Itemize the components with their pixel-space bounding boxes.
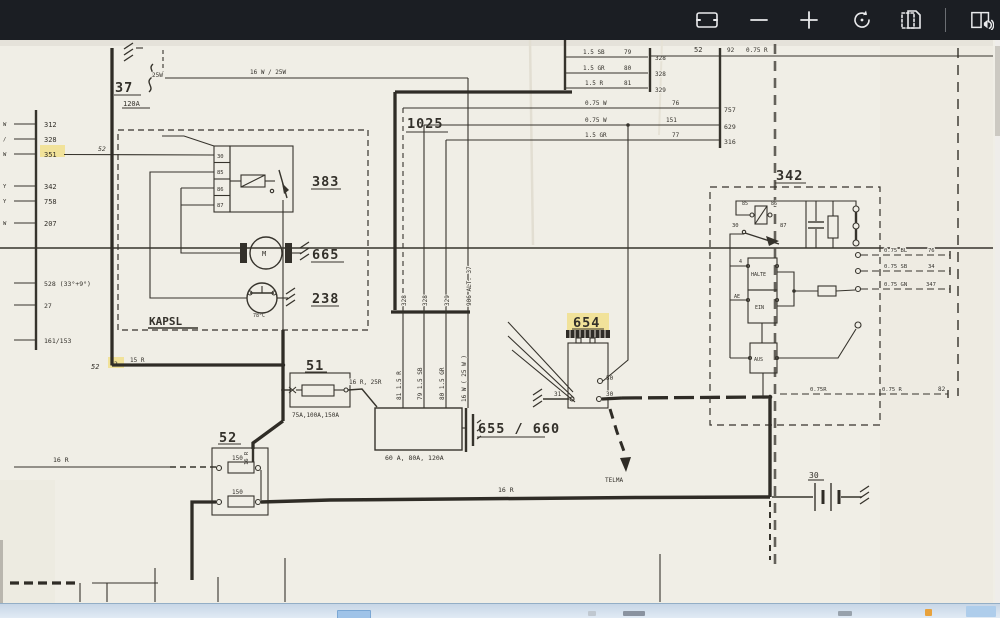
wire-label-16w: 16 W / 25W: [250, 69, 287, 76]
wire-number: 312: [44, 121, 57, 129]
relay-term: 86: [217, 187, 224, 193]
junction-52: 52: [91, 363, 99, 371]
bundle-top: 906 ALT. 37: [466, 266, 473, 306]
viewer-toolbar: [0, 0, 1000, 40]
bus-letter: Y: [3, 184, 7, 190]
toolbar-divider: [945, 8, 946, 32]
out-term: 347: [926, 282, 936, 288]
photo-viewer-window: W / W Y Y W 312 328 351 342 758 207 528 …: [0, 0, 1000, 618]
wire-size: 1.5 SB: [583, 49, 605, 56]
wire-number: 528 (33°+9°): [44, 280, 91, 288]
alternator-bundle: 328 328 329 906 ALT. 37 81 1.5 R 79 1.5 …: [396, 108, 473, 408]
wire-size: 1.5 GR: [585, 132, 607, 139]
wire-term: 77: [672, 132, 680, 139]
wire-number: 758: [44, 198, 57, 206]
relay-output-wire: 52 82 15 R: [91, 200, 285, 449]
switch-halte: HALTE: [751, 272, 766, 278]
component-id-665: 665: [312, 247, 339, 263]
bus-letter: W: [3, 221, 7, 227]
wire-size: 1.5 GR: [583, 65, 605, 72]
relay-654: 654 50 30 31 TELMA: [533, 315, 768, 484]
out-size: 0.75 SB: [884, 264, 908, 270]
fuse-rating-150: 150: [232, 489, 243, 496]
bus-letter: /: [3, 137, 6, 143]
background-window-strip: [0, 603, 1000, 618]
wire-number: 161/153: [44, 337, 71, 345]
wire-term: 76: [672, 100, 680, 107]
bundle-top: 329: [444, 295, 451, 306]
scrollbar-thumb[interactable]: [995, 46, 1000, 136]
wire-term: 81: [624, 80, 632, 87]
switch-ein: EIN: [755, 305, 764, 311]
switch-aus: AUS: [754, 357, 763, 363]
component-id-342: 342: [776, 168, 803, 184]
term-86: 86: [771, 201, 777, 207]
wire-term: 151: [666, 117, 677, 124]
out-term: 76: [928, 248, 935, 254]
fit-to-window-icon[interactable]: [695, 8, 719, 32]
wire-number: 207: [44, 220, 57, 228]
wire-number-351: 351: [44, 151, 57, 159]
label-075r: 0.75 R: [746, 47, 768, 54]
term-87: 87: [780, 223, 787, 229]
component-id-30: 30: [809, 471, 819, 480]
wire-16r-main: 16 R: [498, 486, 514, 494]
bundle-mid: 79 1.5 SB: [417, 367, 424, 400]
left-bus: W / W Y Y W 312 328 351 342 758 207 528 …: [3, 110, 214, 350]
wire-15r: 15 R: [130, 357, 145, 364]
component-id-37: 37: [115, 80, 133, 96]
background-ui-fragment: [925, 609, 932, 616]
term-ae: AE: [734, 294, 740, 300]
bottom-partial-lines: [10, 554, 660, 602]
thermo-temp: 78°C: [253, 313, 265, 319]
mid-rows: 0.75 W 76 757 0.75 W 151 629 1.5 GR 77 3…: [403, 100, 736, 402]
alternator-655-660: 60 A, 80A, 120A 655 / 660: [375, 408, 560, 462]
battery-30: 30: [768, 395, 869, 560]
fuse-rating-150: 150: [232, 455, 243, 462]
bus-letter: Y: [3, 199, 7, 205]
kapsl-box: KAPSL 30 85 86 87 383: [118, 130, 368, 330]
fuse-51: 51 75A,100A,150A 16 R, 25R: [283, 358, 382, 419]
fuse-rating: 25W: [152, 72, 163, 79]
relay-term: 85: [217, 170, 224, 176]
read-aloud-icon[interactable]: [970, 8, 994, 32]
main-feed-wire: 16 R: [261, 486, 770, 502]
component-id-1025: 1025: [407, 116, 444, 132]
wire-term: 79: [624, 49, 632, 56]
background-ui-fragment: [623, 611, 645, 616]
wire-16r-left: 16 R: [53, 456, 69, 464]
kapsl-title: KAPSL: [149, 315, 182, 328]
rotate-icon[interactable]: [850, 8, 874, 32]
wire-number: 342: [44, 183, 57, 191]
wire-number: 27: [44, 302, 52, 310]
motor-letter: M: [262, 250, 266, 258]
term-50: 50: [606, 375, 614, 382]
component-id-383: 383: [312, 174, 339, 190]
wire-size: 0.75 W: [585, 100, 607, 107]
bottom-term-82: 82: [938, 386, 946, 393]
out-size: 0.75 BL: [884, 248, 908, 254]
term-30: 30: [732, 223, 739, 229]
wire-size: 1.5 R: [585, 80, 603, 87]
label-52: 52: [694, 46, 702, 54]
wire-circuit: 329: [655, 87, 666, 94]
wire-circuit: 629: [724, 123, 736, 131]
zoom-out-icon[interactable]: [747, 8, 771, 32]
wire-circuit: 328: [655, 71, 666, 78]
term-4: 4: [739, 259, 742, 265]
tap-52: 52: [98, 145, 106, 153]
background-ui-fragment: [966, 606, 996, 617]
telma-label: TELMA: [605, 477, 623, 484]
relay-term: 87: [217, 203, 224, 209]
wire-number: 328: [44, 136, 57, 144]
fuse-37: 37 25W 120A 16 W / 25W: [114, 43, 468, 312]
bottom-wire-2: 0.75 R: [882, 387, 903, 393]
term-31: 31: [554, 391, 562, 398]
zoom-in-icon[interactable]: [797, 8, 821, 32]
bottom-wire-1: 0.75R: [810, 387, 827, 393]
bundle-mid: 80 1.5 GR: [439, 367, 446, 400]
schematic-scan[interactable]: W / W Y Y W 312 328 351 342 758 207 528 …: [0, 40, 995, 603]
wire-size: 0.75 W: [585, 117, 607, 124]
component-id-655-660: 655 / 660: [478, 421, 560, 437]
bundle-top: 328: [401, 295, 408, 306]
bus-letter: W: [3, 122, 7, 128]
fuse51-ratings: 75A,100A,150A: [292, 412, 339, 419]
bundle-mid: 16 W ( 25 W ): [461, 355, 468, 402]
label-92: 92: [727, 47, 735, 54]
wire-circuit: 757: [724, 106, 736, 114]
term-85: 85: [742, 201, 748, 207]
bus-letter: W: [3, 152, 7, 158]
out-size: 0.75 GN: [884, 282, 907, 288]
junction-82: 82: [110, 360, 118, 368]
fuse51-wire: 16 R, 25R: [349, 379, 382, 386]
out-term: 34: [928, 264, 935, 270]
crop-icon[interactable]: [900, 8, 924, 32]
scrollbar[interactable]: [995, 40, 1000, 618]
background-ui-fragment: [588, 611, 596, 616]
wire-term: 80: [624, 65, 632, 72]
background-ui-fragment: [337, 610, 371, 618]
wire-circuit: 316: [724, 138, 736, 146]
bundle-mid: 81 1.5 R: [396, 371, 403, 400]
background-ui-fragment: [838, 611, 852, 616]
component-id-238: 238: [312, 291, 339, 307]
alt-ratings: 60 A, 80A, 120A: [385, 454, 444, 462]
fuse-amps: 120A: [123, 100, 141, 108]
wire-16r-top: 16 R: [244, 451, 250, 465]
relay-term: 30: [217, 154, 224, 160]
bundle-top: 328: [422, 295, 429, 306]
